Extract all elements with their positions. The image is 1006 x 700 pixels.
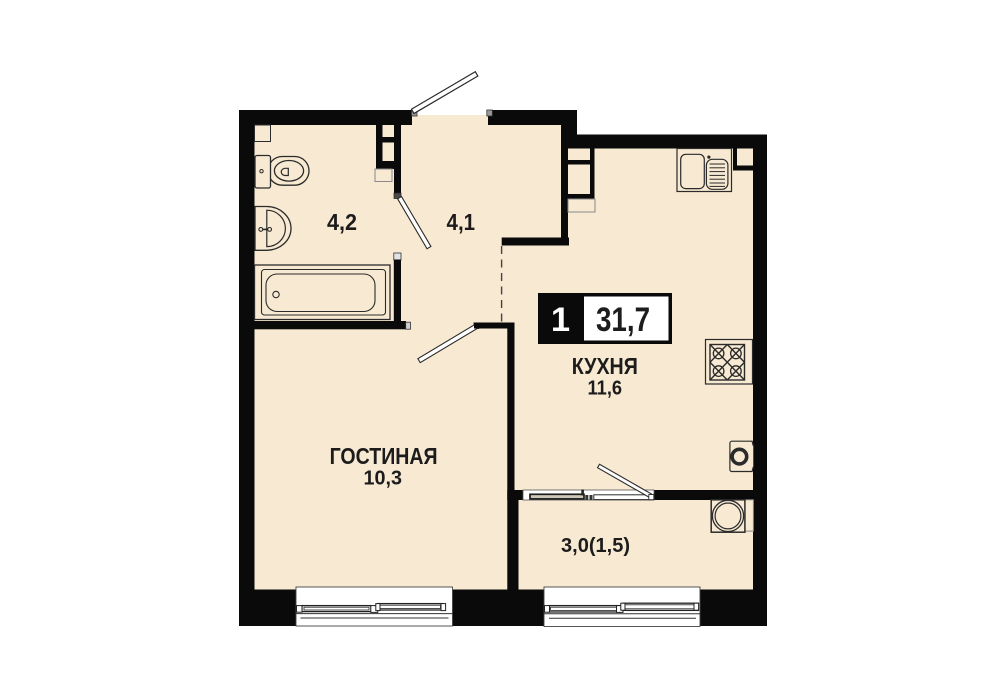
svg-text:1: 1 [551,301,570,339]
svg-text:3,0(1,5): 3,0(1,5) [561,534,630,557]
svg-text:КУХНЯ: КУХНЯ [572,353,638,379]
svg-text:4,1: 4,1 [447,209,476,235]
svg-text:10,3: 10,3 [364,468,403,490]
svg-text:11,6: 11,6 [588,378,623,400]
svg-text:4,2: 4,2 [327,209,357,235]
svg-text:31,7: 31,7 [596,301,650,339]
svg-text:ГОСТИНАЯ: ГОСТИНАЯ [330,443,438,469]
